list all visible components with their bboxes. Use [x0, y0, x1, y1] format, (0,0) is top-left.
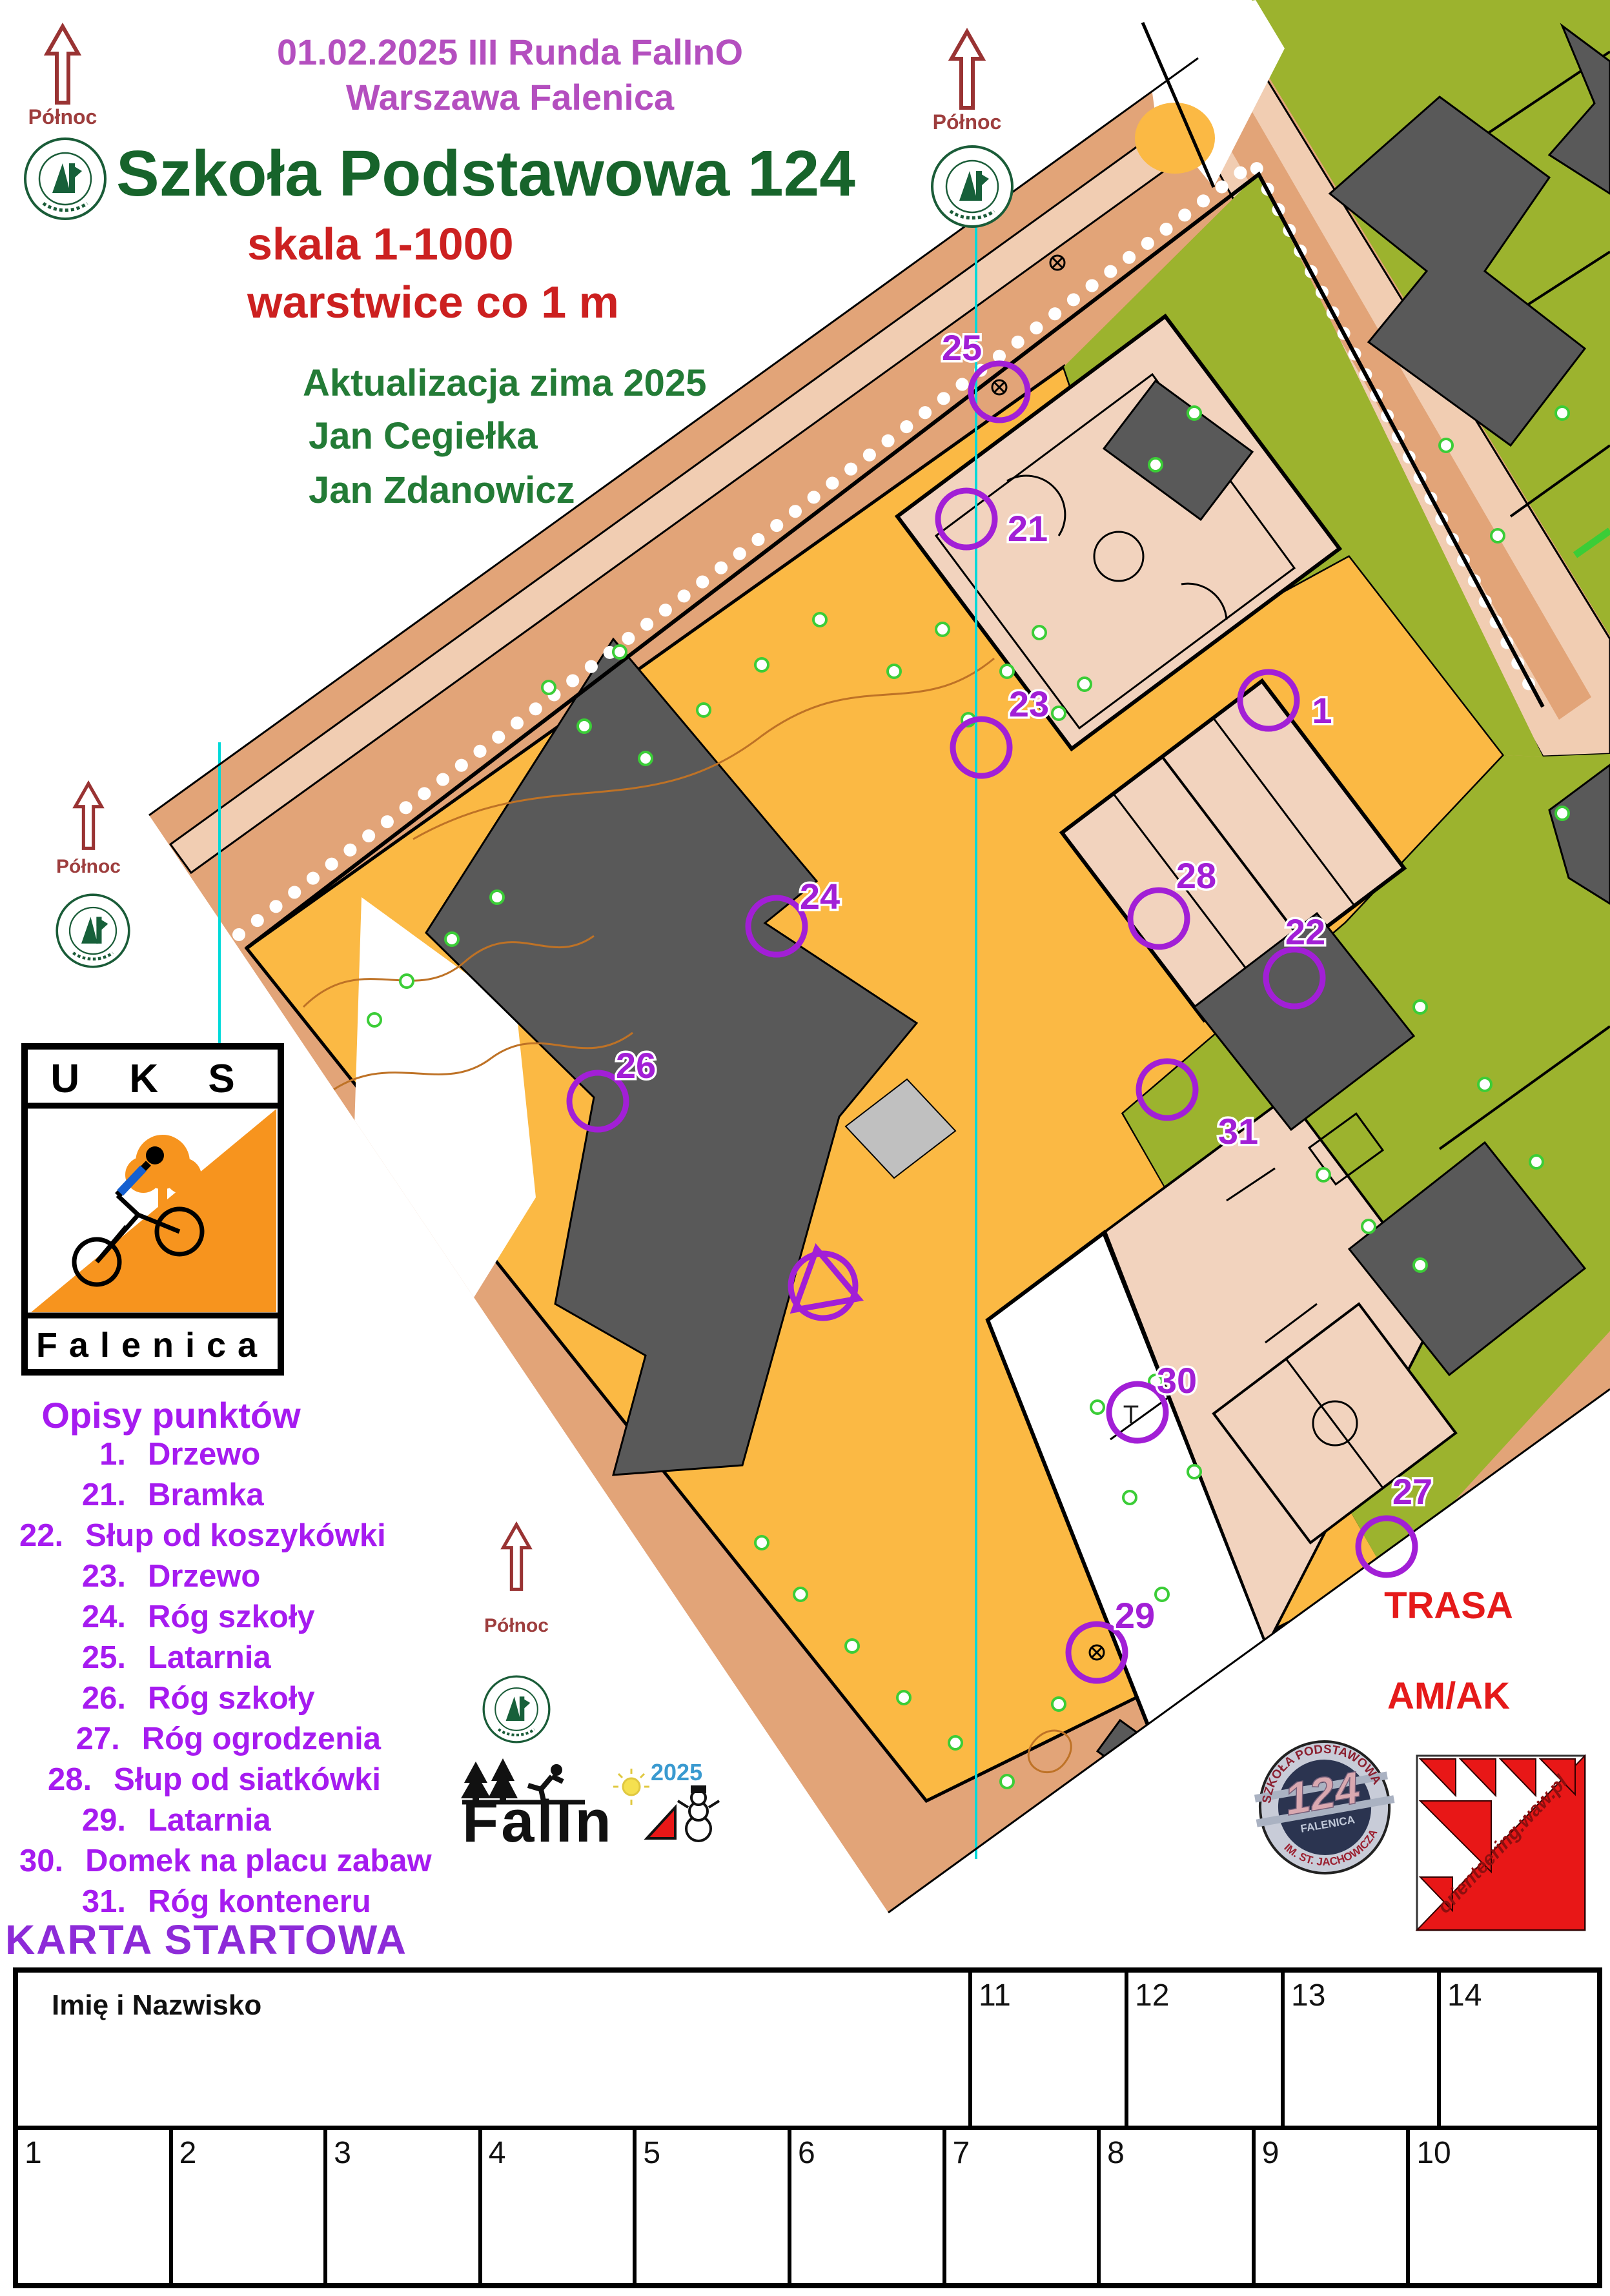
author-1: Jan Cegiełka — [309, 414, 538, 458]
cell-number: 9 — [1262, 2135, 1279, 2171]
control-description-number: 22. — [19, 1518, 63, 1554]
north-label-2: Północ — [933, 110, 1002, 134]
control-number-21: 21 — [1008, 508, 1048, 549]
control-description-text: Róg ogrodzenia — [120, 1721, 381, 1757]
control-number-22: 22 — [1285, 911, 1325, 952]
tree-icon — [1556, 807, 1569, 820]
start-card-cell-11[interactable]: 11 — [972, 1973, 1128, 2126]
tree-icon — [1001, 665, 1014, 678]
control-description-row: 1.Drzewo — [19, 1436, 381, 1477]
control-description-text: Róg szkoły — [126, 1599, 315, 1635]
tree-icon — [542, 681, 555, 694]
start-card-cell-6[interactable]: 6 — [791, 2130, 946, 2284]
cell-number: 1 — [25, 2135, 42, 2171]
tree-icon — [888, 665, 901, 678]
tree-icon — [1317, 1168, 1330, 1181]
control-description-text: Róg szkoły — [126, 1680, 315, 1716]
start-card-cell-10[interactable]: 10 — [1410, 2130, 1565, 2284]
tree-icon — [794, 1588, 807, 1601]
tree-icon — [1078, 678, 1091, 691]
start-card-cell-1[interactable]: 1 — [18, 2130, 173, 2284]
control-description-number: 24. — [19, 1599, 126, 1635]
tree-icon — [1156, 1588, 1168, 1601]
cell-number: 13 — [1291, 1978, 1325, 2013]
control-description-number: 28. — [19, 1762, 92, 1798]
start-card-cell-5[interactable]: 5 — [637, 2130, 791, 2284]
tree-icon — [1440, 439, 1452, 452]
falino-flag — [647, 1807, 675, 1838]
sun-icon — [613, 1769, 649, 1805]
start-card-cell-13[interactable]: 13 — [1285, 1973, 1441, 2126]
control-description-number: 27. — [19, 1721, 120, 1757]
control-description-row: 23.Drzewo — [19, 1558, 381, 1599]
tree-icon — [1091, 1401, 1104, 1414]
cell-number: 12 — [1135, 1978, 1169, 2013]
tree-icon — [578, 720, 591, 733]
control-description-number: 30. — [19, 1843, 63, 1879]
start-card-cell-12[interactable]: 12 — [1128, 1973, 1285, 2126]
name-label: Imię i Nazwisko — [52, 1989, 261, 2021]
tree-icon — [1556, 407, 1569, 420]
uks-bottom-text: Falenica — [36, 1326, 269, 1365]
tree-icon — [1052, 707, 1065, 720]
tree-icon — [368, 1013, 381, 1026]
control-number-29: 29 — [1115, 1595, 1155, 1636]
control-description-number: 21. — [19, 1477, 126, 1513]
tree-icon — [813, 613, 826, 626]
north-label-1: Północ — [28, 105, 97, 128]
tree-icon — [897, 1691, 910, 1704]
scale-line: skala 1-1000 — [247, 218, 514, 270]
tree-icon — [949, 1736, 962, 1749]
control-descriptions-title: Opisy punktów — [19, 1394, 323, 1436]
control-description-text: Bramka — [126, 1477, 264, 1513]
snowman-icon — [678, 1787, 719, 1841]
tree-icon — [1033, 626, 1046, 639]
control-description-row: 26.Róg szkoły — [19, 1680, 381, 1721]
control-description-row: 27.Róg ogrodzenia — [19, 1721, 381, 1762]
control-description-text: Latarnia — [126, 1802, 271, 1838]
map-title: Szkoła Podstawowa 124 — [116, 137, 855, 211]
t-house-symbol: T — [1123, 1401, 1139, 1429]
event-location-line: Warszawa Falenica — [252, 76, 768, 118]
tree-icon — [1123, 1491, 1136, 1504]
control-description-number: 29. — [19, 1802, 126, 1838]
falino-year: 2025 — [651, 1759, 702, 1785]
control-description-text: Słup od siatkówki — [92, 1762, 381, 1798]
lasy-logo-1 — [25, 139, 105, 219]
control-description-text: Drzewo — [126, 1558, 260, 1594]
control-description-row: 29.Latarnia — [19, 1802, 381, 1843]
start-card-cell-9[interactable]: 9 — [1256, 2130, 1411, 2284]
control-description-text: Domek na placu zabaw — [63, 1843, 431, 1879]
tree-icon — [1491, 529, 1504, 542]
control-description-number: 25. — [19, 1640, 126, 1676]
cell-number: 4 — [489, 2135, 506, 2171]
tree-icon — [936, 623, 949, 636]
control-description-number: 26. — [19, 1680, 126, 1716]
tree-icon — [1478, 1078, 1491, 1091]
tree-icon — [1149, 458, 1162, 471]
course-label-line2: AM/AK — [1326, 1651, 1571, 1742]
cell-number: 6 — [798, 2135, 815, 2171]
start-card-cell-8[interactable]: 8 — [1101, 2130, 1256, 2284]
control-description-text: Słup od koszykówki — [63, 1518, 386, 1554]
tree-icon — [445, 933, 458, 946]
tree-icon — [613, 645, 626, 658]
tree-icon — [1001, 1775, 1014, 1788]
cell-number: 5 — [643, 2135, 660, 2171]
control-number-23: 23 — [1009, 684, 1049, 724]
tree-icon — [639, 752, 652, 765]
event-date-line: 01.02.2025 III Runda FalInO — [252, 31, 768, 73]
cell-number: 10 — [1416, 2135, 1451, 2171]
cell-number: 7 — [953, 2135, 970, 2171]
control-description-text: Róg konteneru — [126, 1884, 371, 1920]
control-description-text: Drzewo — [126, 1436, 260, 1472]
start-card-cell-2[interactable]: 2 — [173, 2130, 328, 2284]
update-line: Aktualizacja zima 2025 — [303, 361, 706, 405]
uks-falenica-logo: U K S Falenica — [25, 1046, 281, 1372]
tree-icon — [697, 704, 710, 716]
tree-icon — [1188, 407, 1201, 420]
lasy-logo-2 — [932, 147, 1012, 227]
cell-number: 14 — [1447, 1978, 1482, 2013]
control-number-28: 28 — [1176, 855, 1216, 896]
north-arrow-2 — [952, 32, 983, 108]
uks-text: U K S — [50, 1057, 254, 1101]
tree-icon — [1530, 1155, 1543, 1168]
falino-logo: FalIn 2025 — [461, 1758, 719, 1854]
tree-icon — [755, 1536, 768, 1549]
control-description-row: 30.Domek na placu zabaw — [19, 1843, 381, 1884]
tree-icon — [1362, 1220, 1375, 1233]
control-description-row: 22.Słup od koszykówki — [19, 1518, 381, 1558]
cell-number: 11 — [979, 1978, 1011, 2013]
north-label-3: Północ — [56, 856, 121, 877]
control-number-25: 25 — [942, 327, 982, 368]
control-number-26: 26 — [616, 1045, 656, 1086]
tree-icon — [1414, 1001, 1427, 1013]
control-number-1: 1 — [1312, 690, 1332, 731]
tree-icon — [846, 1640, 859, 1652]
start-card-title: KARTA STARTOWA — [5, 1916, 407, 1964]
name-cell[interactable]: Imię i Nazwisko — [18, 1973, 972, 2126]
tree-icon — [755, 658, 768, 671]
control-number-24: 24 — [800, 876, 840, 917]
cell-number: 2 — [179, 2135, 197, 2171]
course-label: TRASA AM/AK — [1326, 1561, 1571, 1742]
control-number-30: 30 — [1157, 1360, 1197, 1401]
tree-icon — [1414, 1259, 1427, 1272]
start-card-cell-14[interactable]: 14 — [1441, 1973, 1597, 2126]
tree-icon — [491, 891, 504, 904]
control-description-number: 31. — [19, 1884, 126, 1920]
author-2: Jan Zdanowicz — [309, 469, 575, 512]
control-descriptions-list: 1.Drzewo21.Bramka22.Słup od koszykówki23… — [19, 1436, 381, 1924]
contour-line: warstwice co 1 m — [247, 276, 619, 328]
start-card-cell-3[interactable]: 3 — [327, 2130, 482, 2284]
control-descriptions: Opisy punktów 1.Drzewo21.Bramka22.Słup o… — [19, 1394, 381, 1924]
control-number-27: 27 — [1392, 1471, 1432, 1512]
control-description-row: 24.Róg szkoły — [19, 1599, 381, 1640]
control-description-row: 21.Bramka — [19, 1477, 381, 1518]
north-arrow-1 — [47, 26, 78, 103]
start-card-cell-4[interactable]: 4 — [482, 2130, 637, 2284]
tree-icon — [400, 975, 413, 988]
control-description-text: Latarnia — [126, 1640, 271, 1676]
north-label-4: Północ — [484, 1615, 549, 1636]
control-description-row: 28.Słup od siatkówki — [19, 1762, 381, 1802]
tree-icon — [1188, 1465, 1201, 1478]
cell-number: 8 — [1107, 2135, 1125, 2171]
cell-number: 3 — [334, 2135, 351, 2171]
control-description-number: 1. — [19, 1436, 126, 1472]
falino-word: FalIn — [462, 1789, 614, 1854]
start-card-cell-7[interactable]: 7 — [946, 2130, 1101, 2284]
control-description-row: 25.Latarnia — [19, 1640, 381, 1680]
course-label-line1: TRASA — [1326, 1561, 1571, 1651]
page: 25212312428222631302729T Północ Północ P… — [0, 0, 1610, 2296]
control-description-number: 23. — [19, 1558, 126, 1594]
control-number-31: 31 — [1218, 1111, 1258, 1152]
school-badge-124: SZKOŁA PODSTAWOWA 124 FALENICA IM. ST. J… — [1245, 1731, 1405, 1884]
waw-logo: orienteering.waw.pl — [1417, 1756, 1585, 1930]
start-card-table: Imię i Nazwisko 11121314 12345678910 — [13, 1967, 1602, 2288]
tree-icon — [1052, 1698, 1065, 1711]
